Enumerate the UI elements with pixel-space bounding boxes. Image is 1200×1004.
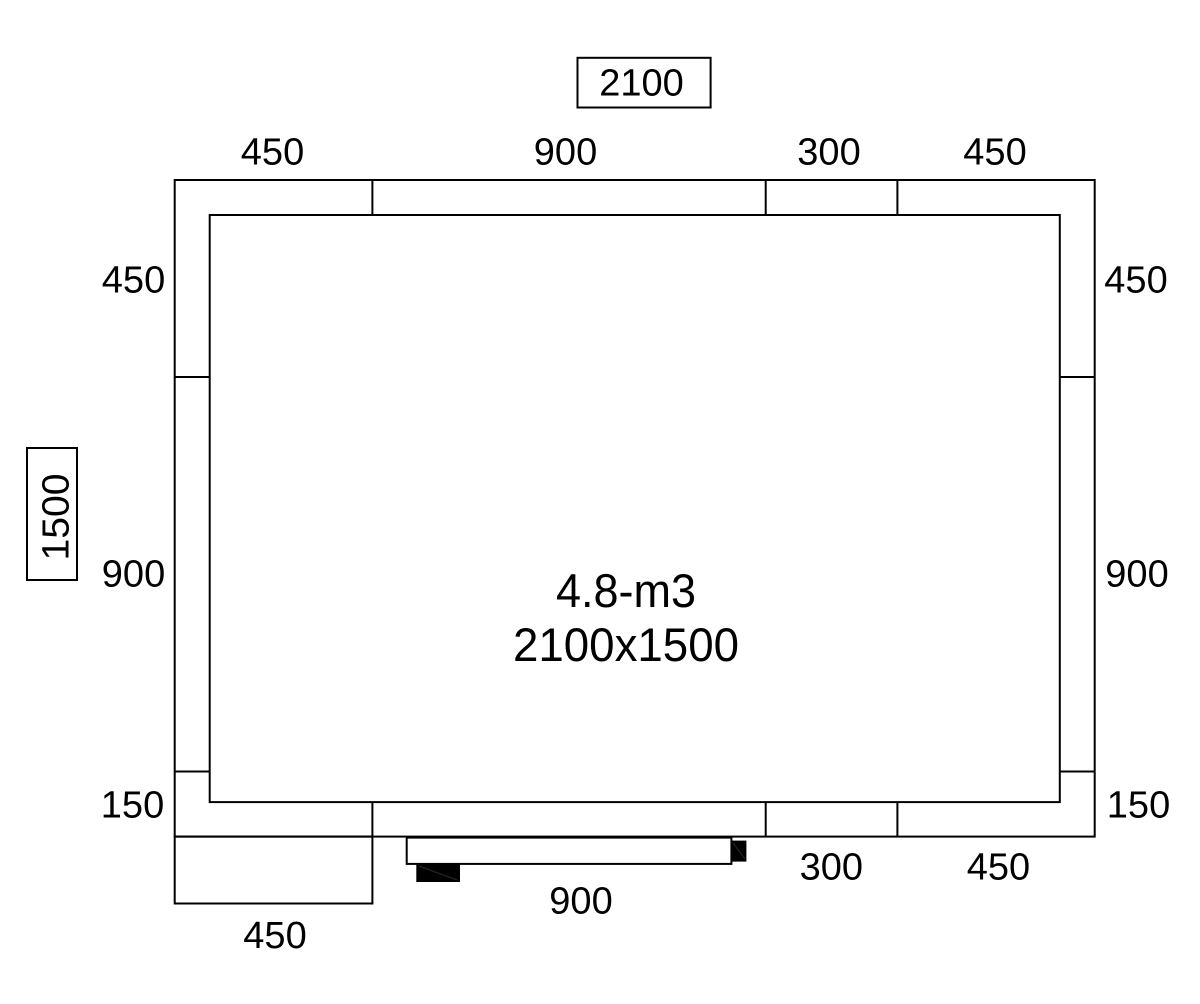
svg-text:2100x1500: 2100x1500: [513, 618, 739, 671]
svg-text:300: 300: [797, 132, 860, 174]
svg-text:300: 300: [800, 847, 863, 889]
svg-text:1500: 1500: [36, 474, 78, 561]
svg-text:450: 450: [1104, 259, 1167, 301]
svg-text:2100: 2100: [599, 63, 684, 105]
svg-text:450: 450: [243, 915, 306, 957]
svg-text:450: 450: [241, 132, 304, 174]
svg-text:150: 150: [101, 784, 164, 826]
svg-text:450: 450: [102, 259, 165, 301]
svg-text:4.8-m3: 4.8-m3: [556, 564, 696, 617]
svg-text:900: 900: [102, 554, 165, 596]
svg-text:900: 900: [1105, 554, 1168, 596]
svg-text:450: 450: [967, 847, 1030, 889]
svg-text:900: 900: [534, 132, 597, 174]
svg-text:900: 900: [549, 881, 612, 923]
svg-text:450: 450: [963, 132, 1026, 174]
svg-text:150: 150: [1107, 784, 1170, 826]
